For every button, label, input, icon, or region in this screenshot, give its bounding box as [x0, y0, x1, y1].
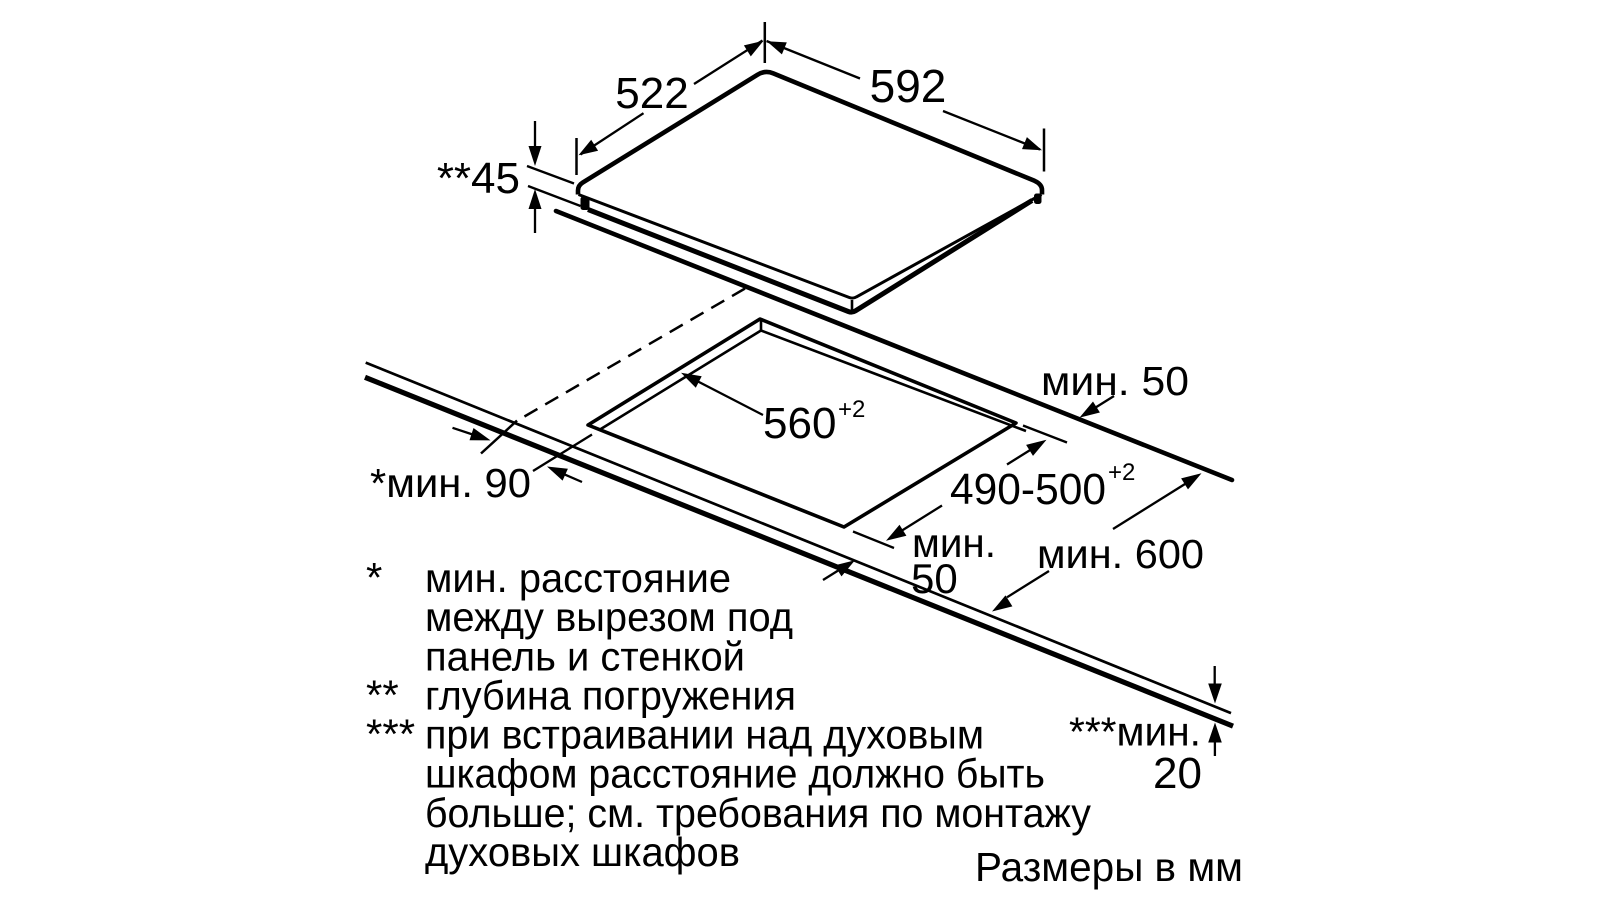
svg-text:Размеры в мм: Размеры в мм [975, 844, 1243, 890]
svg-text:мин. 600: мин. 600 [1037, 531, 1204, 577]
svg-text:+2: +2 [838, 396, 865, 423]
svg-text:20: 20 [1153, 749, 1202, 798]
svg-text:560: 560 [763, 399, 836, 448]
svg-text:+2: +2 [1108, 459, 1135, 486]
svg-text:***мин.: ***мин. [1069, 709, 1201, 755]
svg-text:духовых шкафов: духовых шкафов [425, 829, 740, 875]
svg-text:490-500: 490-500 [950, 465, 1106, 514]
svg-text:*мин. 90: *мин. 90 [370, 460, 531, 506]
svg-text:***: *** [366, 711, 415, 758]
svg-text:мин. 50: мин. 50 [1041, 358, 1189, 404]
svg-text:*: * [366, 554, 382, 601]
svg-text:592: 592 [870, 60, 947, 112]
svg-text:**45: **45 [437, 154, 520, 203]
svg-text:50: 50 [911, 555, 958, 602]
svg-text:522: 522 [615, 69, 688, 118]
